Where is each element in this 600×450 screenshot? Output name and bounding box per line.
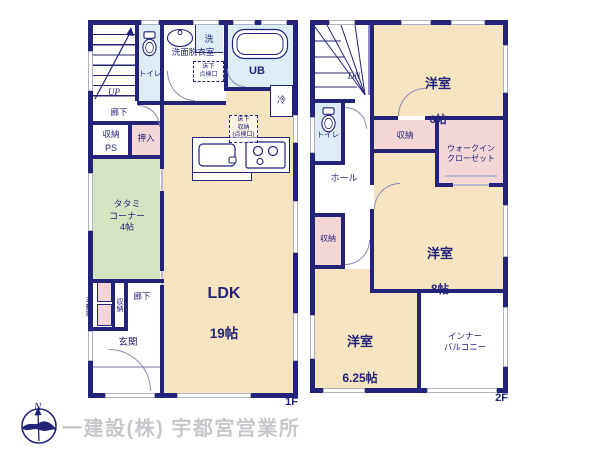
- door-arc: [167, 71, 195, 101]
- washroom-label: 洗面脱衣室: [161, 47, 225, 58]
- wall-segment: [135, 25, 139, 101]
- ldk-size: 19帖: [189, 325, 259, 343]
- movable-shelf-label: 可動棚: [82, 288, 91, 326]
- window: [503, 205, 508, 257]
- underfloor-hatch-label: 床下 点検口: [193, 64, 224, 79]
- shoe-cabinet-upper: [97, 280, 112, 302]
- pipe-space-label: PS: [94, 143, 128, 155]
- wall-segment: [160, 191, 164, 271]
- window: [310, 315, 315, 359]
- tatami-label: タタミ コーナー 4帖: [97, 199, 157, 234]
- staircase-2f: [315, 25, 370, 99]
- floor-plan-canvas: 冷 床下 点検口 床下 収納 (点検口) UP 廊下 トイレ 洗 洗面脱衣室 U…: [0, 0, 600, 450]
- floor-tag-2f: 2F: [478, 392, 508, 404]
- door-arc: [109, 349, 151, 391]
- window: [293, 115, 298, 143]
- door-arc: [345, 240, 370, 265]
- window: [451, 20, 485, 25]
- door-arc: [138, 105, 160, 127]
- window: [329, 20, 355, 25]
- window: [88, 51, 93, 91]
- wall-segment: [370, 120, 374, 185]
- hall-label: ホール: [322, 173, 366, 185]
- wall-segment: [489, 183, 503, 187]
- inner-balcony-label: インナー バルコニー: [427, 331, 503, 353]
- compass-icon: N: [14, 398, 64, 448]
- walk-in-closet-label: ウォークイン クローゼット: [440, 144, 502, 165]
- storage-left-label: 収納: [315, 234, 341, 244]
- entrance-label: 玄関: [106, 337, 150, 349]
- wall-segment: [160, 285, 164, 393]
- company-name-label: 一建設(株) 宇都宮営業所: [62, 412, 300, 441]
- bedroom-625-size: 6.25帖: [324, 371, 396, 387]
- kitchen-stove-icon: [245, 140, 287, 170]
- storage-top-label: 収納: [94, 129, 128, 140]
- wall-segment: [315, 161, 345, 165]
- window: [261, 20, 287, 25]
- bedroom-8-label: 洋室 8帖: [410, 225, 470, 319]
- laundry-label: 洗: [195, 34, 223, 46]
- oshiire-label: 押入: [130, 133, 162, 144]
- bathtub-icon: [231, 28, 289, 60]
- bath-label: UB: [241, 64, 273, 78]
- entrance-opening: [105, 393, 155, 398]
- window: [88, 173, 93, 231]
- storage-bottom-label: 収納: [114, 287, 124, 323]
- fridge-label: 冷: [270, 95, 293, 107]
- sliding-door-track: [161, 169, 163, 191]
- bedroom-8-name: 洋室: [410, 246, 470, 263]
- kitchen-counter-lip: [192, 173, 252, 181]
- window: [141, 20, 159, 25]
- window: [193, 20, 219, 25]
- kitchen-sink-icon: [197, 141, 239, 169]
- wall-segment: [93, 155, 164, 159]
- toilet-icon: [141, 31, 158, 57]
- stairs-up-label: UP: [99, 87, 129, 99]
- ldk-label: LDK 19帖: [189, 263, 259, 364]
- toilet-2f-label: トイレ: [315, 130, 341, 140]
- hallway-top-label: 廊下: [101, 107, 137, 118]
- wall-segment: [370, 116, 398, 120]
- window: [177, 393, 251, 398]
- ldk-name: LDK: [189, 284, 259, 305]
- closet-rail: [445, 175, 497, 177]
- door-arc: [345, 107, 367, 129]
- hallway-bottom-label: 廊下: [126, 291, 158, 302]
- floor-plan-1f: 冷 床下 点検口 床下 収納 (点検口) UP 廊下 トイレ 洗 洗面脱衣室 U…: [88, 20, 298, 398]
- window: [88, 331, 93, 361]
- wall-segment: [370, 209, 374, 289]
- floor-plan-2f: DN 洋室 6帖 トイレ ホール 収納 収納 ウォークイン クローゼット 洋室 …: [310, 20, 508, 393]
- stairs-down-label: DN: [341, 71, 367, 83]
- bedroom-625-label: 洋室 6.25帖: [324, 313, 396, 408]
- wall-segment: [93, 327, 128, 331]
- wall-segment: [439, 183, 453, 187]
- window: [233, 20, 255, 25]
- wall-segment: [124, 281, 128, 329]
- window: [503, 45, 508, 93]
- washbasin-icon: [166, 28, 194, 48]
- toilet-1f-label: トイレ: [135, 69, 165, 79]
- floor-tag-1f: 1F: [268, 396, 298, 408]
- wall-segment: [160, 25, 164, 105]
- window: [293, 201, 298, 253]
- wall-segment: [137, 101, 226, 105]
- underfloor-storage-label: 床下 収納 (点検口): [229, 117, 258, 140]
- wall-segment: [93, 279, 164, 283]
- bedroom-6-size: 6帖: [408, 113, 468, 127]
- bedroom-6-name: 洋室: [408, 76, 468, 93]
- storage-top-label: 収納: [383, 130, 427, 141]
- wall-segment: [370, 25, 374, 120]
- window: [503, 307, 508, 367]
- window: [293, 313, 298, 361]
- window: [401, 20, 431, 25]
- closet-rail: [453, 184, 489, 186]
- bedroom-625-name: 洋室: [324, 334, 396, 351]
- shoe-cabinet-lower: [97, 304, 112, 326]
- wall-segment: [315, 99, 355, 103]
- wall-segment: [315, 265, 345, 269]
- bedroom-8-size: 8帖: [410, 283, 470, 298]
- wall-segment: [370, 149, 437, 153]
